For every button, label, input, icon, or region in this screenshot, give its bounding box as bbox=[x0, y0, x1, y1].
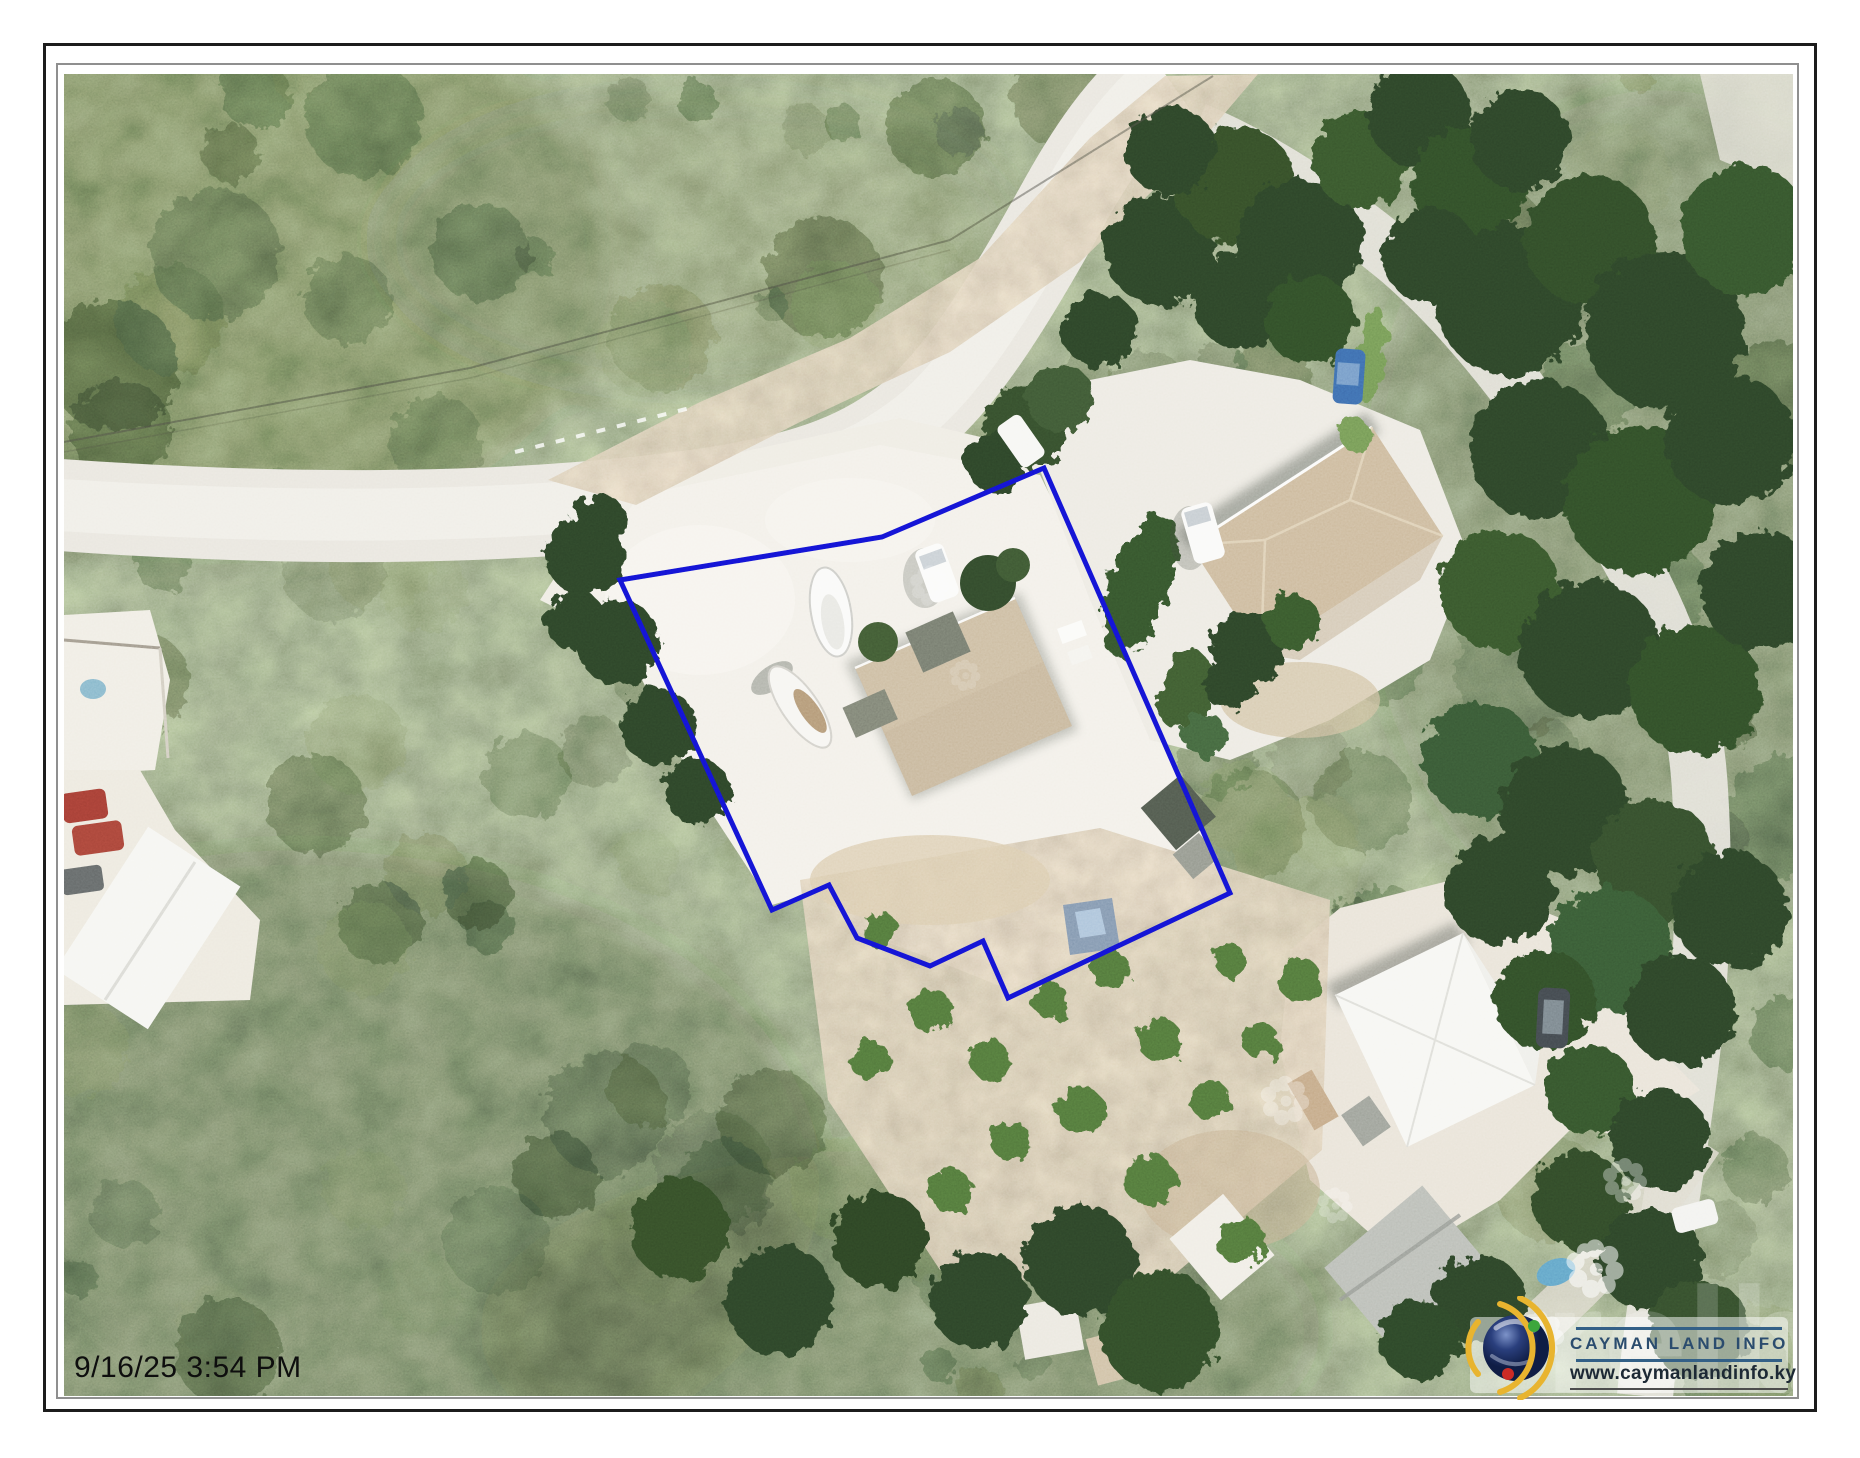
logo-title: CAYMAN LAND INFO bbox=[1570, 1334, 1788, 1354]
red-dot bbox=[1502, 1368, 1514, 1380]
logo-rule-top bbox=[1576, 1327, 1782, 1330]
aerial-imagery: relb bbox=[64, 74, 1793, 1396]
green-dot bbox=[1528, 1320, 1540, 1332]
logo-rule-bottom bbox=[1570, 1388, 1788, 1390]
photo-grain bbox=[64, 74, 1793, 1396]
aerial-photo: relb bbox=[64, 74, 1793, 1396]
globe-orbit-icon bbox=[1462, 1296, 1566, 1400]
logo-website: www.caymanlandinfo.ky bbox=[1570, 1363, 1788, 1385]
timestamp: 9/16/25 3:54 PM bbox=[74, 1351, 302, 1385]
logo-rule-middle bbox=[1576, 1359, 1782, 1362]
